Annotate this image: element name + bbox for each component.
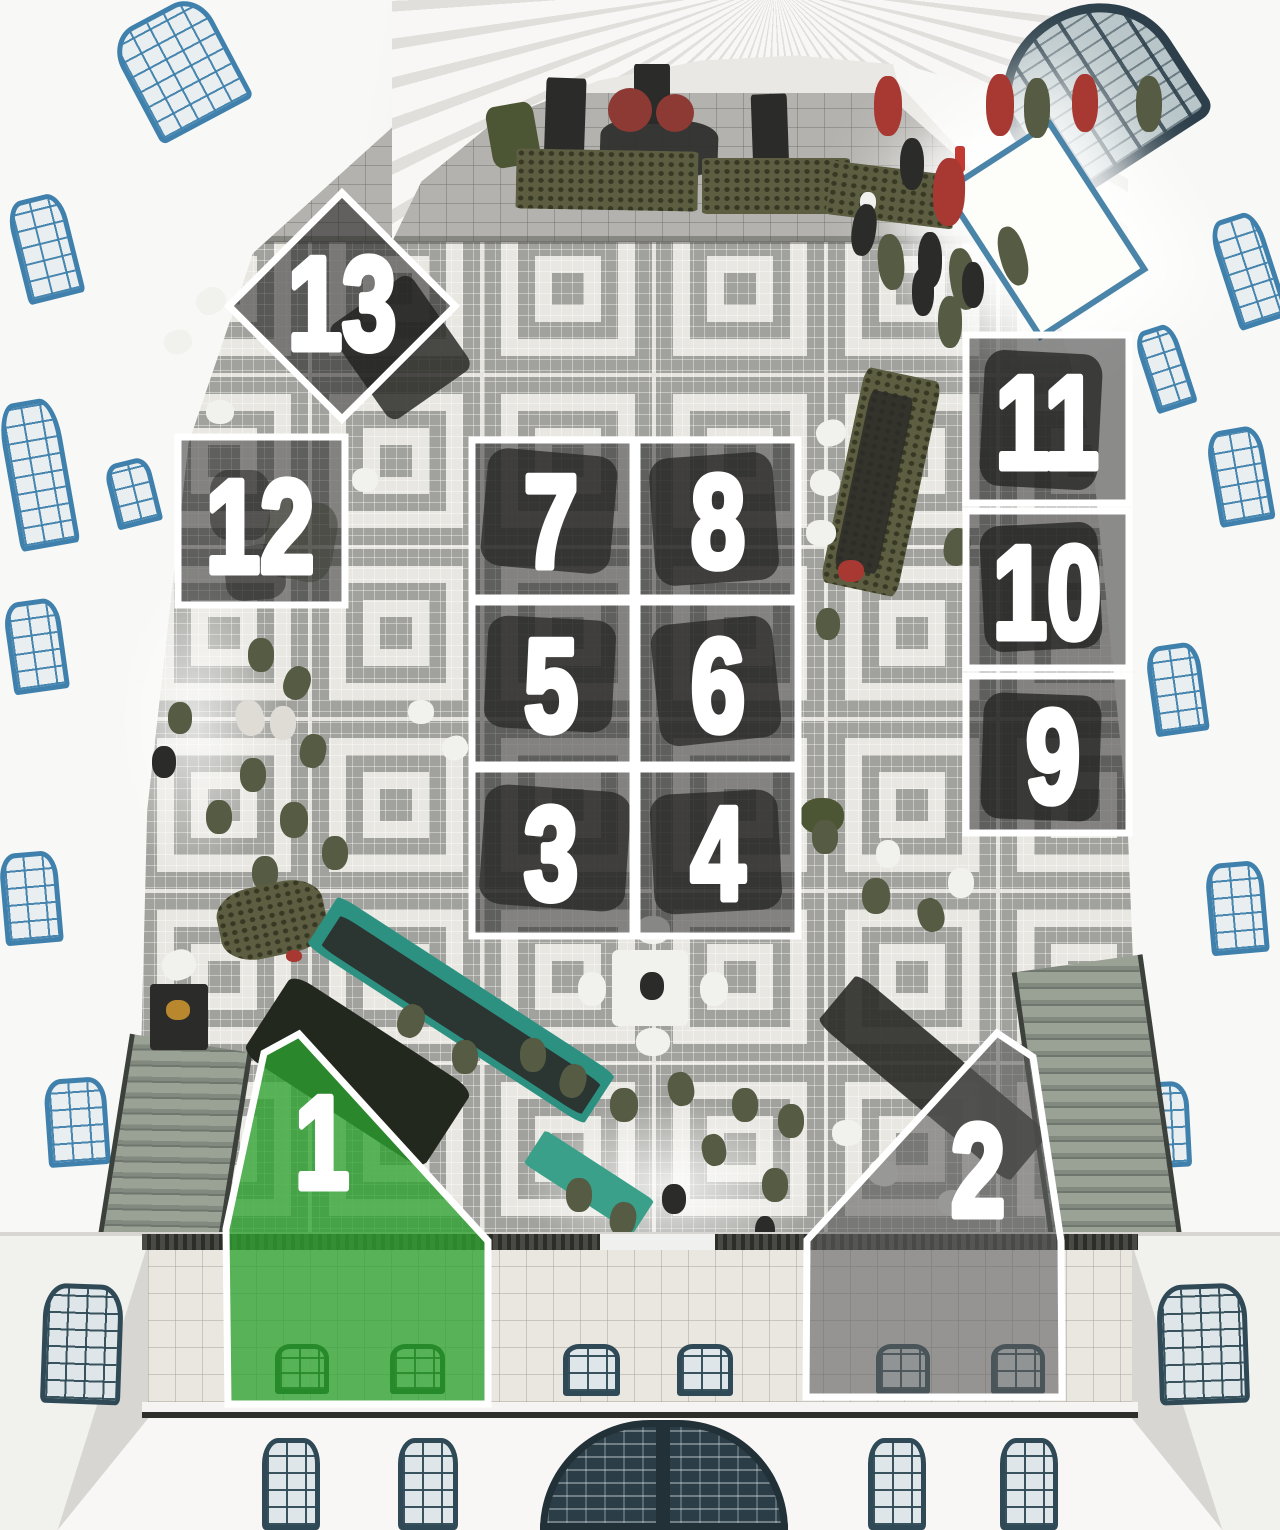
zone-7-region[interactable] [472,440,633,598]
zone-8-region[interactable] [637,440,798,598]
zone-11-region[interactable] [966,335,1129,503]
zone-1-region[interactable] [226,1034,488,1404]
zone-12-region[interactable] [178,437,345,605]
zone-6-region[interactable] [637,602,798,765]
zone-13-region[interactable] [229,193,455,419]
zone-2-region[interactable] [806,1033,1062,1397]
zones-overlay: 13 12 7 8 5 6 3 4 11 10 9 1 2 [0,0,1280,1530]
zone-3-region[interactable] [472,769,633,936]
zone-4-region[interactable] [637,769,798,936]
zone-10-region[interactable] [966,511,1129,668]
zone-9-region[interactable] [966,676,1129,833]
zone-5-region[interactable] [472,602,633,765]
venue-zone-map: 13 12 7 8 5 6 3 4 11 10 9 1 2 [0,0,1280,1530]
